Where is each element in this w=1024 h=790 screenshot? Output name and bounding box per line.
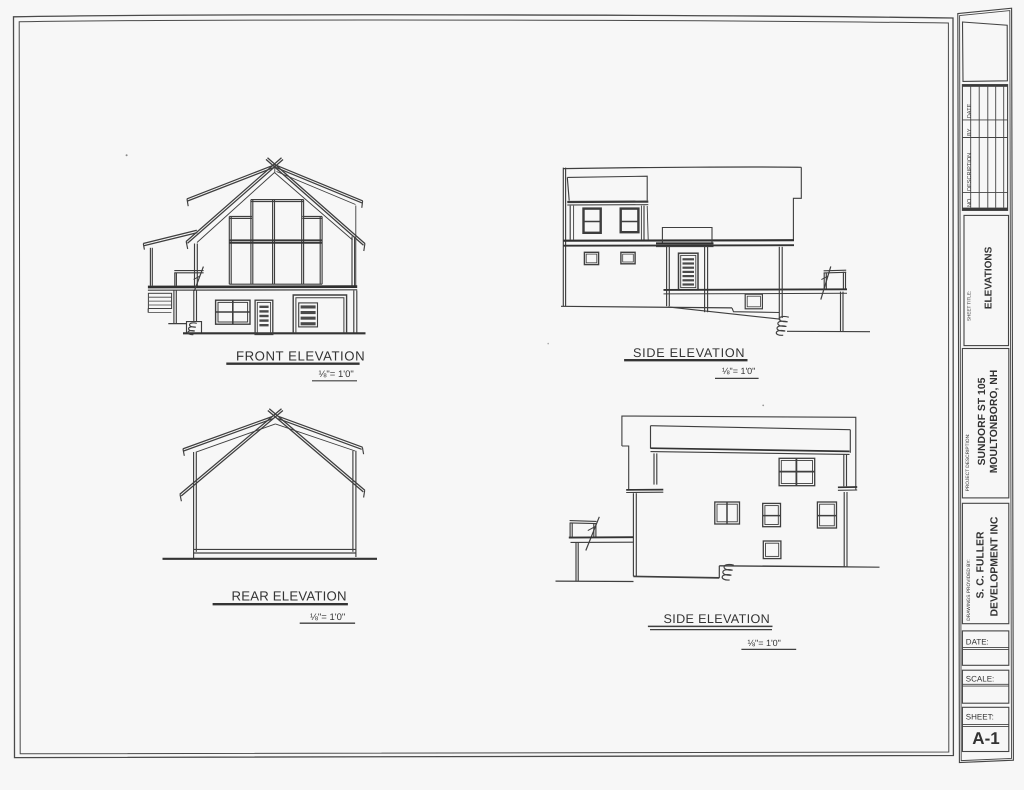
svg-text:ELEVATIONS: ELEVATIONS [983, 246, 994, 309]
svg-text:⅛"= 1'0": ⅛"= 1'0" [310, 612, 345, 623]
svg-text:DATE:: DATE: [966, 638, 989, 647]
svg-text:BY: BY [967, 128, 973, 136]
svg-text:SIDE ELEVATION: SIDE ELEVATION [633, 346, 745, 360]
svg-text:DESCRIPTION: DESCRIPTION [967, 153, 973, 191]
svg-text:DATE: DATE [967, 103, 973, 118]
svg-text:SUNDORF ST 105: SUNDORF ST 105 [977, 377, 988, 465]
svg-text:S. C. FULLER: S. C. FULLER [975, 531, 986, 598]
svg-text:⅛"= 1'0": ⅛"= 1'0" [319, 369, 354, 380]
svg-text:REAR ELEVATION: REAR ELEVATION [232, 589, 347, 604]
svg-text:NO.: NO. [967, 197, 973, 207]
svg-text:PROJECT DESCRIPTION:: PROJECT DESCRIPTION: [965, 434, 971, 492]
svg-text:FRONT ELEVATION: FRONT ELEVATION [236, 349, 365, 364]
svg-text:A-1: A-1 [972, 729, 999, 748]
svg-text:SHEET TITLE:: SHEET TITLE: [967, 291, 972, 321]
svg-text:SHEET:: SHEET: [966, 713, 994, 722]
svg-text:⅛"= 1'0": ⅛"= 1'0" [722, 366, 755, 376]
svg-text:DEVELOPMENT INC: DEVELOPMENT INC [990, 516, 1001, 616]
svg-text:MOULTONBORO, NH: MOULTONBORO, NH [989, 370, 1000, 474]
svg-text:SIDE ELEVATION: SIDE ELEVATION [664, 612, 771, 626]
svg-text:DRAWINGS PROVIDED BY:: DRAWINGS PROVIDED BY: [966, 559, 972, 620]
svg-text:⅛"= 1'0": ⅛"= 1'0" [748, 638, 781, 648]
svg-text:SCALE:: SCALE: [966, 675, 994, 684]
